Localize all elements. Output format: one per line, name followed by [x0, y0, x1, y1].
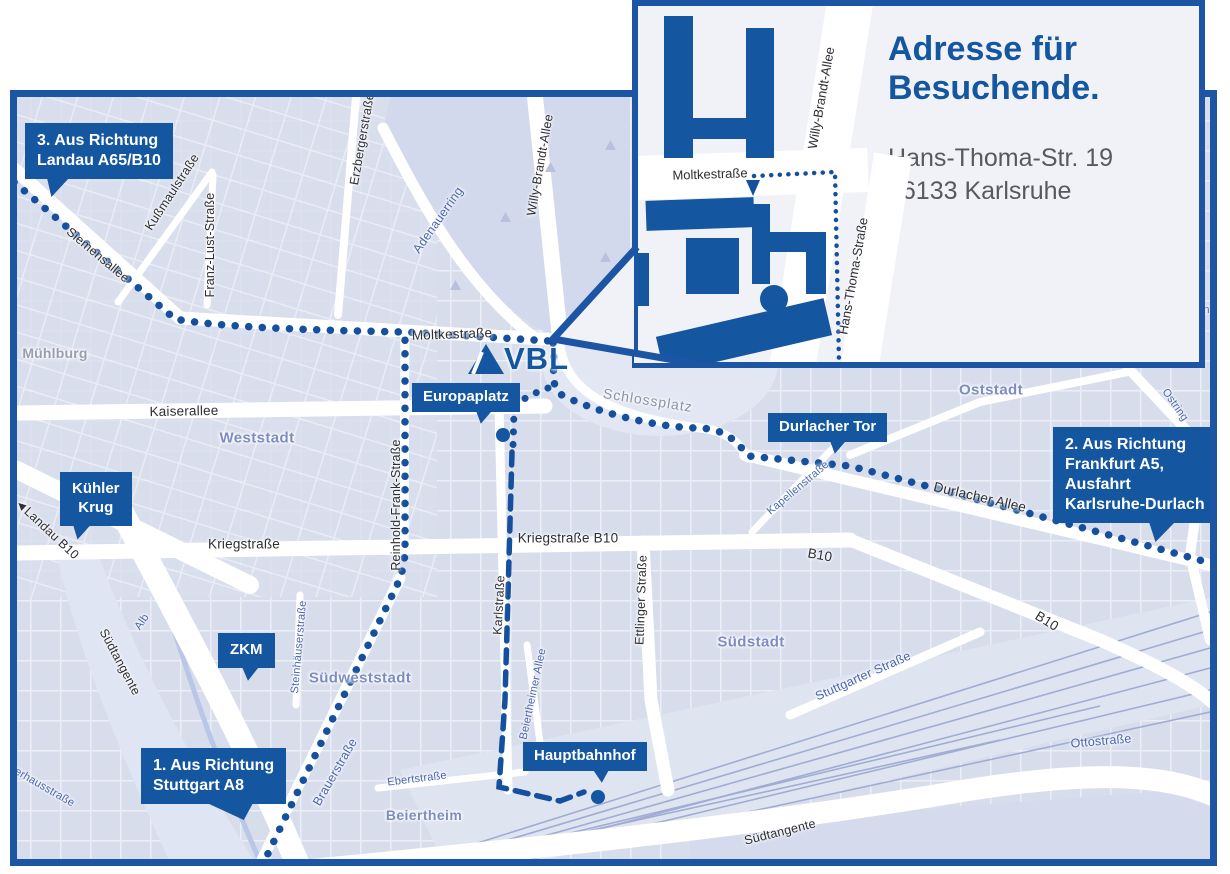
street-label-franz-lust-strasse: Franz-Lust-Straße: [203, 193, 217, 298]
hauptbahnhof-dot: [591, 790, 605, 804]
callout-landau-line2: Landau A65/B10: [37, 151, 161, 171]
callout-zkm: ZKM: [218, 633, 275, 668]
district-label-beiertheim: Beiertheim: [386, 807, 462, 823]
callout-frankfurt-line2: Frankfurt A5,: [1065, 455, 1205, 475]
street-label-reinhold-frank-strasse: Reinhold-Frank-Straße: [389, 439, 403, 570]
district-label-suedstadt: Südstadt: [717, 634, 784, 651]
callout-stuttgart: 1. Aus Richtung Stuttgart A8: [141, 748, 286, 804]
vbl-logo-text: VBL: [504, 341, 569, 377]
callout-frankfurt-line3: Ausfahrt: [1065, 475, 1205, 495]
callout-stuttgart-line1: 1. Aus Richtung: [153, 756, 274, 776]
vbl-directions-map: Siemensallee Kußmaulstraße Franz-Lust-St…: [0, 0, 1230, 874]
callout-kuehler-krug: Kühler Krug: [60, 472, 132, 526]
callout-landau: 3. Aus Richtung Landau A65/B10: [25, 123, 173, 179]
callout-durlacher-tor: Durlacher Tor: [768, 413, 887, 442]
district-label-suedweststadt: Südweststadt: [309, 670, 411, 687]
street-label-kaiserallee: Kaiserallee: [149, 403, 218, 419]
callout-frankfurt-line4: Karlsruhe-Durlach: [1065, 495, 1205, 515]
inset-street-label-moltkestrasse: Moltkestraße: [672, 165, 748, 183]
district-label-muehlburg: Mühlburg: [22, 345, 87, 361]
vbl-triangle-icon: [468, 344, 504, 374]
vbl-logo: VBL: [468, 341, 569, 377]
europaplatz-dot: [496, 428, 510, 442]
callout-frankfurt-line1: 2. Aus Richtung: [1065, 435, 1205, 455]
inset-route: [638, 6, 1199, 362]
callout-stuttgart-line2: Stuttgart A8: [153, 776, 274, 796]
callout-hauptbahnhof-line1: Hauptbahnhof: [534, 747, 636, 766]
district-label-weststadt: Weststadt: [219, 430, 294, 447]
entrance-arrow-icon: [746, 180, 760, 196]
callout-durlacher-tor-line1: Durlacher Tor: [779, 418, 876, 437]
callout-kuehler-krug-line2: Krug: [72, 499, 120, 518]
callout-europaplatz-line1: Europaplatz: [423, 388, 509, 407]
address-inset-panel: Moltkestraße Willy-Brandt-Allee Hans-Tho…: [632, 0, 1205, 368]
callout-hauptbahnhof: Hauptbahnhof: [523, 742, 647, 771]
district-label-oststadt: Oststadt: [959, 382, 1023, 399]
callout-zkm-line1: ZKM: [230, 641, 263, 660]
street-label-kriegstrasse-b10: Kriegstraße B10: [518, 531, 619, 546]
street-label-kriegstrasse: Kriegstraße: [208, 537, 280, 552]
callout-kuehler-krug-line1: Kühler: [72, 480, 120, 499]
callout-landau-line1: 3. Aus Richtung: [37, 131, 161, 151]
callout-frankfurt: 2. Aus Richtung Frankfurt A5, Ausfahrt K…: [1053, 427, 1217, 523]
callout-europaplatz: Europaplatz: [412, 383, 520, 412]
